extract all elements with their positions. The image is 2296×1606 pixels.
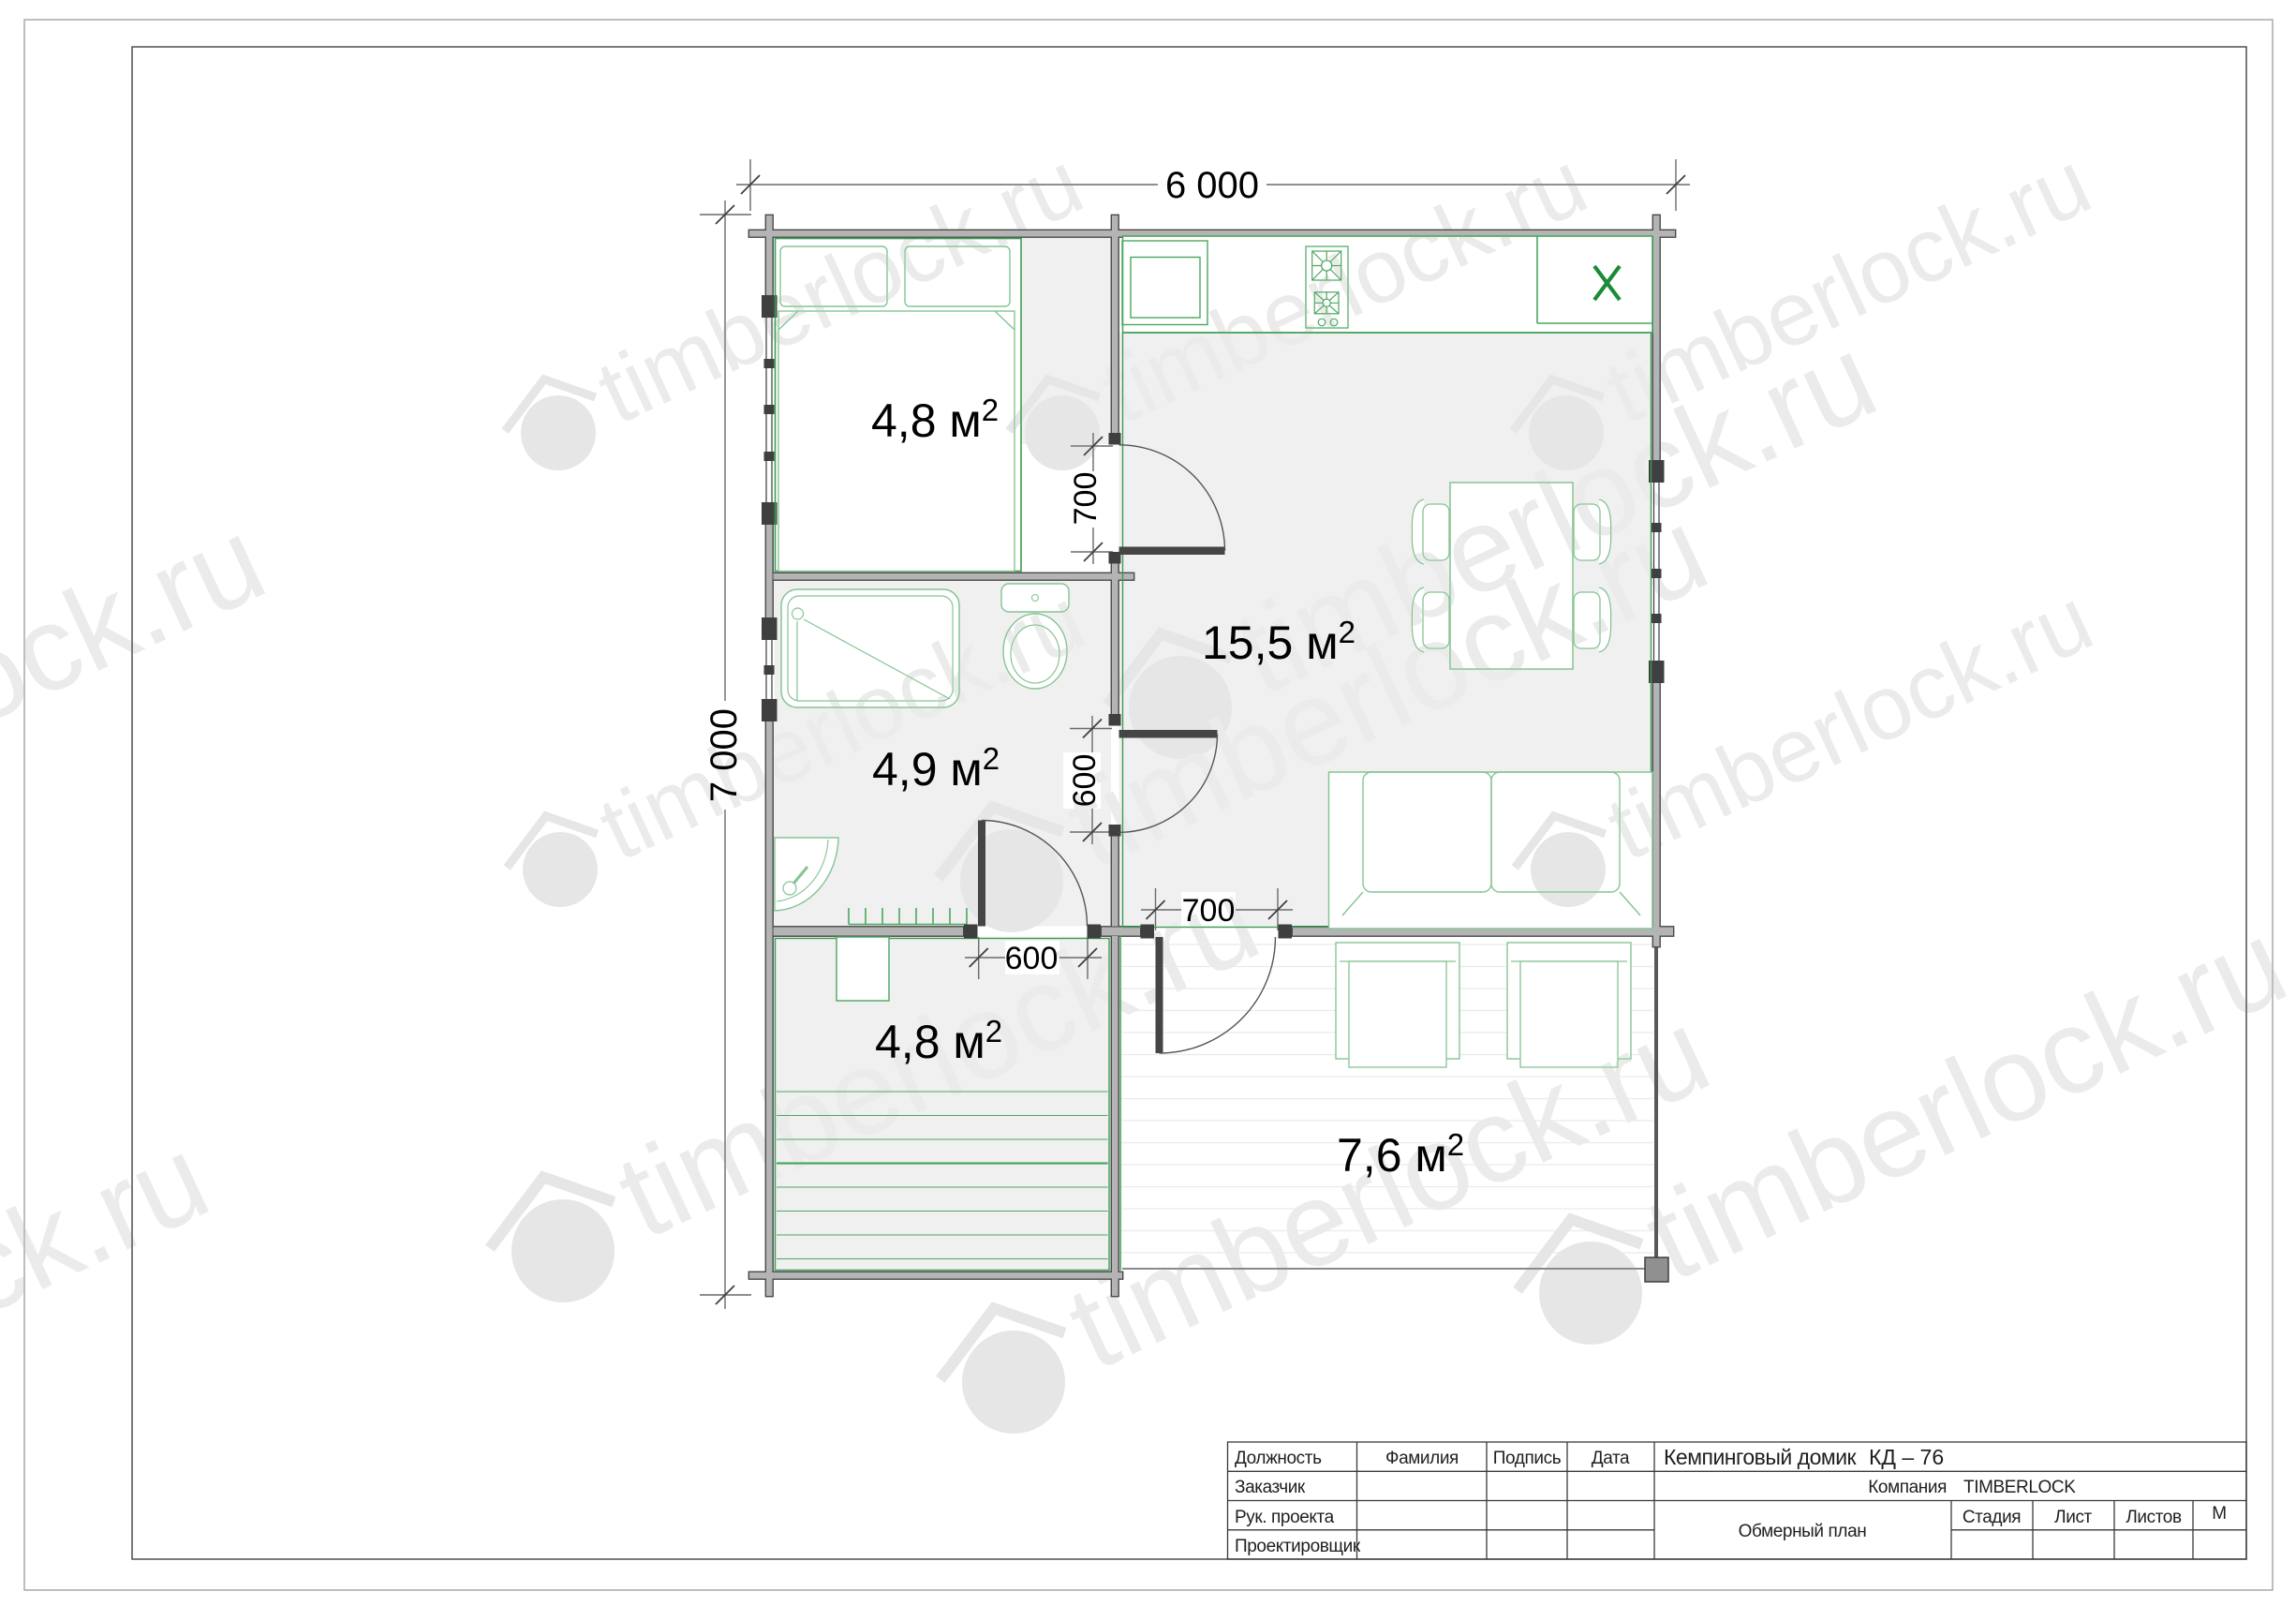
svg-text:Обмерный план: Обмерный план — [1739, 1522, 1867, 1541]
svg-text:Заказчик: Заказчик — [1235, 1478, 1306, 1497]
svg-text:Рук. проекта: Рук. проекта — [1235, 1508, 1335, 1527]
svg-text:6 000: 6 000 — [1165, 165, 1259, 206]
svg-text:700: 700 — [1068, 472, 1104, 526]
svg-text:TIMBERLOCK: TIMBERLOCK — [1963, 1478, 2076, 1497]
svg-text:Компания: Компания — [1868, 1478, 1947, 1497]
svg-text:Фамилия: Фамилия — [1385, 1449, 1459, 1468]
svg-text:Подпись: Подпись — [1493, 1449, 1562, 1468]
svg-text:Проектировщик: Проектировщик — [1235, 1537, 1361, 1556]
svg-text:КД – 76: КД – 76 — [1869, 1445, 1944, 1469]
svg-text:Стадия: Стадия — [1963, 1508, 2021, 1527]
svg-text:М: М — [2212, 1504, 2226, 1524]
svg-text:Должность: Должность — [1235, 1449, 1322, 1468]
svg-text:Лист: Лист — [2054, 1508, 2092, 1527]
svg-text:Листов: Листов — [2126, 1508, 2182, 1527]
svg-text:4,8 м2: 4,8 м2 — [871, 393, 999, 447]
svg-text:Кемпинговый домик: Кемпинговый домик — [1664, 1445, 1858, 1469]
svg-text:Дата: Дата — [1592, 1449, 1630, 1468]
